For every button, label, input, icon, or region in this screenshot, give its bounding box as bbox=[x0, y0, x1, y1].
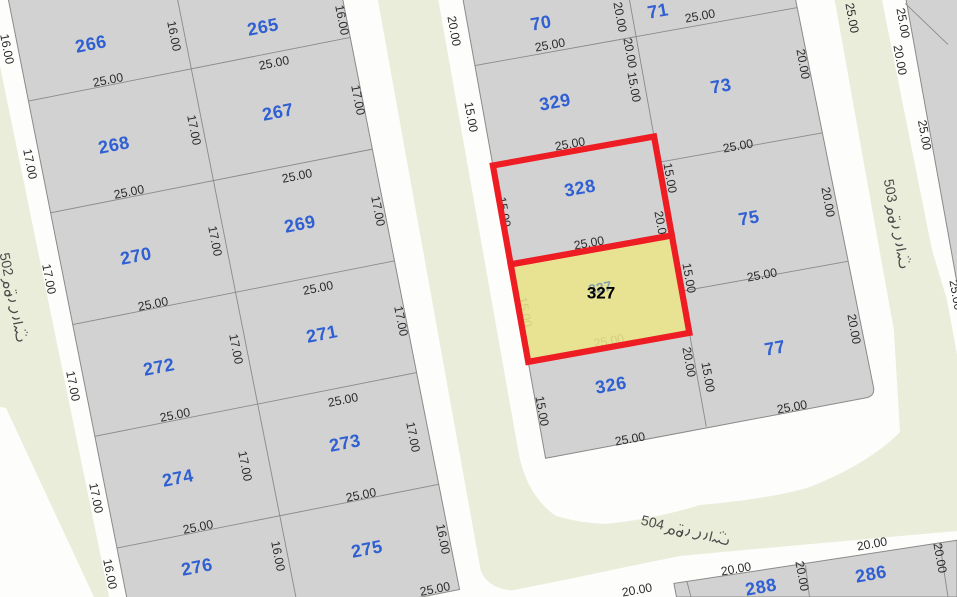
svg-text:73: 73 bbox=[709, 74, 733, 97]
svg-text:327: 327 bbox=[587, 284, 615, 303]
svg-text:70: 70 bbox=[529, 11, 553, 34]
svg-text:75: 75 bbox=[737, 206, 761, 229]
svg-text:71: 71 bbox=[646, 0, 670, 23]
svg-text:77: 77 bbox=[763, 336, 787, 359]
